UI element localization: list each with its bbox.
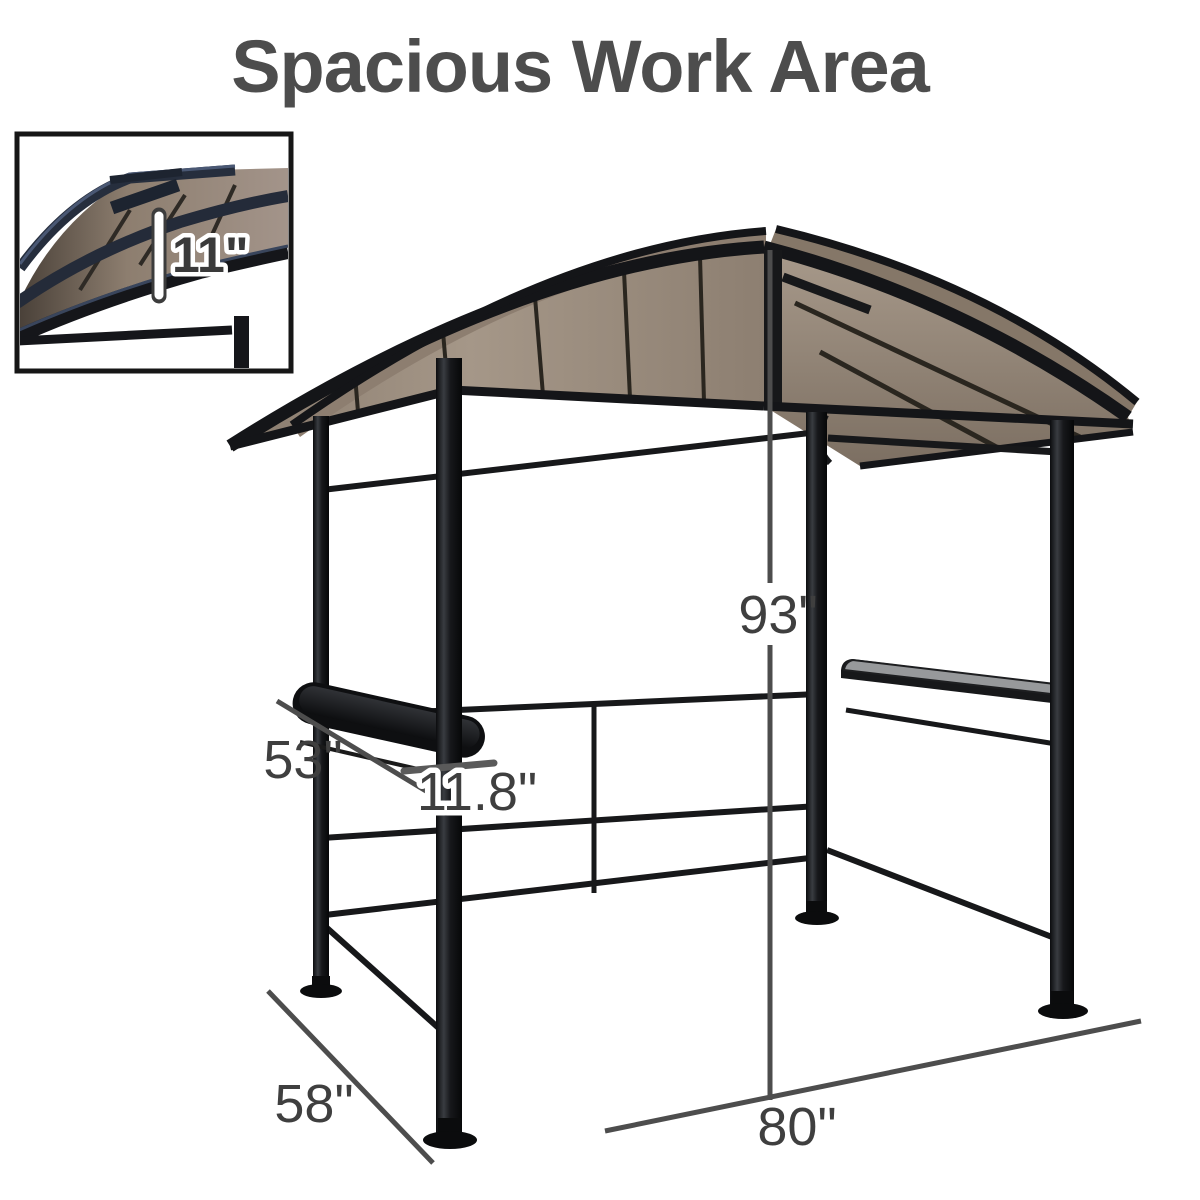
back-wall-bottom-rail bbox=[325, 857, 818, 915]
depth-label: 58" bbox=[274, 1074, 353, 1134]
right-side-shelf bbox=[841, 659, 1056, 703]
shelf-length-label: 53" bbox=[263, 730, 342, 790]
post-front-left bbox=[436, 358, 462, 1140]
post-rear-right bbox=[806, 412, 827, 915]
foot-front-right bbox=[1038, 1003, 1088, 1019]
front-posts bbox=[423, 358, 1088, 1149]
post-front-right bbox=[1050, 420, 1074, 1008]
foot-rear-left bbox=[300, 984, 342, 998]
height-label: 93" bbox=[738, 585, 817, 645]
inset-post bbox=[234, 316, 249, 371]
width-dimension-line bbox=[605, 1021, 1141, 1131]
gazebo-dimension-diagram: Spacious Work Area bbox=[0, 0, 1200, 1200]
roof-canopy bbox=[230, 229, 1137, 466]
right-shelf-support-rail bbox=[846, 710, 1056, 744]
vent-height-label: 11" bbox=[172, 227, 249, 283]
foot-rear-right bbox=[795, 911, 839, 925]
back-wall-top-rail bbox=[322, 432, 818, 490]
shelf-depth-label: 11.8" bbox=[417, 762, 537, 822]
roof-peak-upright bbox=[764, 250, 782, 408]
right-wall-bottom-rail bbox=[827, 850, 1052, 937]
left-wall-bottom-rail bbox=[327, 928, 452, 1040]
back-wall-middle-rail bbox=[322, 806, 818, 838]
roof-detail-inset: 11" bbox=[17, 134, 291, 371]
width-label: 80" bbox=[757, 1097, 836, 1157]
foot-front-left bbox=[423, 1131, 477, 1149]
product-dimension-page: Spacious Work Area bbox=[0, 0, 1200, 1200]
gazebo-illustration bbox=[230, 229, 1137, 1149]
product-title: Spacious Work Area bbox=[231, 25, 930, 108]
